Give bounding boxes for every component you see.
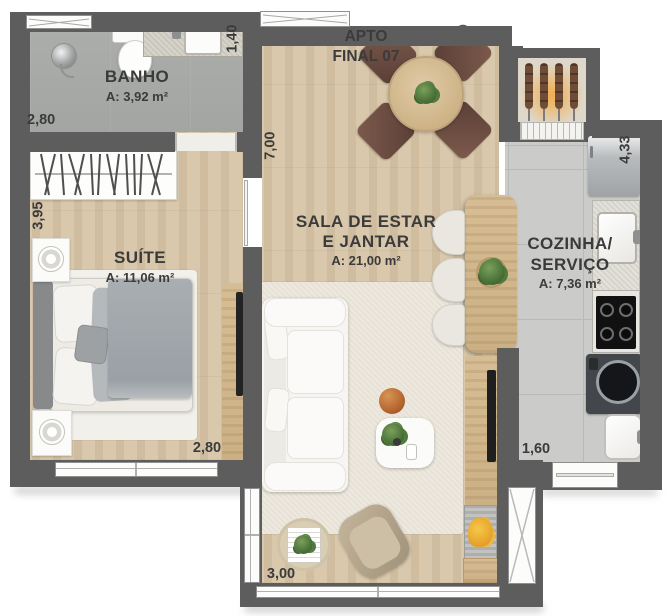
headboard — [33, 281, 53, 409]
lamp-icon — [38, 246, 64, 272]
suite-tv — [236, 292, 243, 396]
sofa-armrest — [264, 462, 346, 491]
armchair-seat — [345, 512, 404, 573]
living-name-line1: SALA DE ESTAR — [291, 213, 441, 231]
exterior-wall-left — [10, 12, 30, 487]
table-plant-icon — [415, 82, 437, 104]
washer-door-icon — [596, 360, 640, 404]
duvet — [108, 279, 192, 398]
bathroom-name: BANHO — [77, 68, 197, 86]
grill-skewer-icon — [570, 63, 578, 109]
kitchen-name-line2: SERVIÇO — [505, 256, 635, 274]
burner-icon — [619, 303, 633, 317]
living-area: A: 21,00 m² — [291, 254, 441, 268]
dim-living-width: 3,00 — [259, 567, 303, 582]
grill-skewer-icon — [525, 63, 533, 109]
living-tv — [487, 370, 496, 462]
window-glazing-icon — [27, 16, 91, 28]
balcony-bottom-window — [256, 586, 500, 598]
yellow-plant-icon — [468, 517, 493, 547]
skewer-stick — [573, 109, 575, 121]
grill-skewer-icon — [555, 63, 563, 109]
living-top-window — [260, 11, 350, 27]
skewer-stick — [528, 109, 530, 121]
bathroom-window — [26, 15, 92, 29]
suite-window — [55, 462, 218, 477]
wardrobe-hangers-icon — [31, 149, 176, 199]
sliding-glass-window — [508, 487, 536, 584]
skewer-stick — [558, 109, 560, 121]
window-glazing-icon — [509, 488, 535, 583]
floor-plan: APTO FINAL 07 BANHO A: 3,92 m² 2,80 1,40… — [0, 0, 672, 616]
kitchen-name-line1: COZINHA/ — [505, 235, 635, 253]
burner-icon — [600, 327, 614, 341]
kitchen-area: A: 7,36 m² — [505, 277, 635, 291]
window-mullion — [377, 587, 379, 597]
suite-area: A: 11,06 m² — [77, 271, 203, 285]
washer-controls — [589, 358, 598, 370]
bathroom-door-opening — [175, 133, 237, 151]
entry-door — [552, 462, 618, 488]
lamp-icon — [39, 419, 65, 445]
suite-living-wall-lower — [243, 247, 262, 460]
dim-bathroom-width: 2,80 — [27, 113, 71, 128]
bed-cushion — [74, 324, 111, 365]
sofa-seat-cushion — [287, 397, 344, 459]
suite-door — [244, 180, 248, 246]
remote-control — [406, 444, 417, 460]
washing-machine — [586, 354, 642, 414]
skewer-stick — [543, 109, 545, 121]
dim-kitchen-width: 1,60 — [514, 442, 558, 457]
window-mullion — [135, 463, 137, 476]
dim-kitchen-depth: 4,33 — [618, 128, 633, 172]
dim-suite-depth: 3,95 — [31, 194, 46, 238]
burner-icon — [619, 327, 633, 341]
bathroom-sink — [184, 29, 222, 55]
plant-pot-dot — [393, 438, 401, 446]
burner-icon — [600, 303, 614, 317]
grill-interior — [518, 58, 586, 122]
dim-bathroom-depth: 1,40 — [225, 17, 240, 61]
island-plant-icon — [479, 259, 505, 285]
apartment-title-line1: APTO — [306, 29, 426, 45]
sofa-seat-cushion — [287, 330, 344, 394]
apartment-title-line2: FINAL 07 — [306, 49, 426, 65]
door-leaf — [556, 473, 614, 477]
dim-suite-width: 2,80 — [185, 441, 229, 456]
basketball-icon — [379, 388, 405, 414]
bath-suite-wall — [10, 132, 175, 152]
window-glazing-icon — [261, 12, 349, 26]
stove — [592, 290, 640, 353]
bathroom-area: A: 3,92 m² — [77, 90, 197, 104]
exterior-wall-right — [640, 120, 662, 490]
living-name-line2: E JANTAR — [291, 233, 441, 251]
suite-name: SUÍTE — [77, 249, 203, 267]
wardrobe — [30, 148, 177, 200]
building-shadow — [14, 487, 250, 494]
fridge-handle — [590, 146, 593, 158]
balcony-left-window — [244, 488, 260, 583]
floor-plant-icon — [294, 535, 313, 554]
dim-living-depth: 7,00 — [263, 124, 278, 168]
sofa-armrest — [264, 298, 346, 327]
grill-shelf — [520, 122, 584, 140]
grill-skewer-icon — [540, 63, 548, 109]
window-mullion — [245, 534, 259, 536]
faucet-icon — [172, 31, 181, 39]
